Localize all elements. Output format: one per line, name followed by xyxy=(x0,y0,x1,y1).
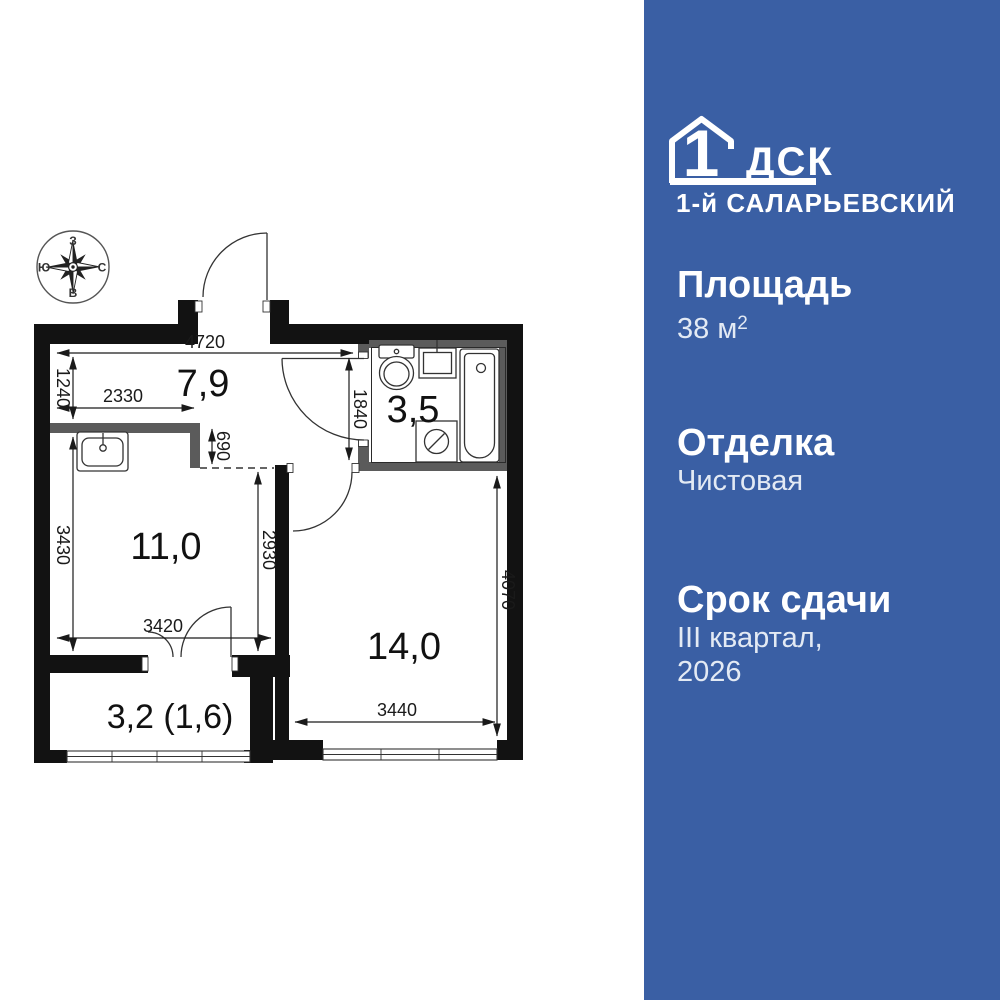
kitchen-sink xyxy=(77,432,128,471)
compass-north-label: С xyxy=(98,261,107,275)
room-label-kitchen: 11,0 xyxy=(130,526,201,568)
compass-rose: З С В Ю xyxy=(37,231,109,303)
floorplan-card: З С В Ю xyxy=(0,0,1000,1000)
deadline-quarter: III квартал, xyxy=(677,621,823,655)
area-number: 38 м xyxy=(677,313,737,345)
brand-logo: 1 ДСК xyxy=(668,112,978,190)
logo-number: 1 xyxy=(683,116,720,190)
compass-east-label: В xyxy=(69,286,78,300)
deadline-year: 2026 xyxy=(677,655,823,689)
spec-finish-label: Отделка xyxy=(677,424,834,464)
dim-1840-label: 1840 xyxy=(350,389,370,429)
logo-brand-text: ДСК xyxy=(746,140,834,184)
room-label-balcony: 3,2 (1,6) xyxy=(107,698,234,736)
room-door xyxy=(293,472,352,531)
spec-deadline-value: III квартал, 2026 xyxy=(677,621,823,689)
doors xyxy=(148,233,364,657)
bathtub xyxy=(460,349,499,462)
spec-area-value: 38 м2 xyxy=(677,307,748,346)
dim-2930-label: 2930 xyxy=(259,530,279,570)
spec-area-label: Площадь xyxy=(677,266,852,306)
toilet xyxy=(379,345,414,390)
dim-2330-label: 2330 xyxy=(103,386,143,406)
room-window xyxy=(323,749,497,760)
info-sidebar: 1 ДСК 1-й САЛАРЬЕВСКИЙ Площадь 38 м2 Отд… xyxy=(644,0,1000,1000)
dim-3430-label: 3430 xyxy=(53,525,73,565)
room-label-hallway: 7,9 xyxy=(177,363,230,405)
balcony-window xyxy=(67,751,250,762)
dim-690-label: 690 xyxy=(213,431,233,461)
area-superscript: 2 xyxy=(737,313,748,334)
dim-4070-label: 4070 xyxy=(498,570,518,610)
compass-west-label: З xyxy=(69,234,77,248)
floor-plan: З С В Ю xyxy=(0,0,644,1000)
dim-3440-label: 3440 xyxy=(377,700,417,720)
dim-1240-label: 1240 xyxy=(53,368,73,408)
dim-3420-label: 3420 xyxy=(143,616,183,636)
entry-wall-stub-right xyxy=(270,300,289,344)
project-name: 1-й САЛАРЬЕВСКИЙ xyxy=(676,188,956,219)
compass-south-label: Ю xyxy=(38,261,50,275)
room-label-room: 14,0 xyxy=(367,626,441,668)
dim-4720-label: 4720 xyxy=(185,332,225,352)
room-divider-wall xyxy=(275,465,289,740)
spec-deadline-label: Срок сдачи xyxy=(677,581,891,621)
entrance-door xyxy=(203,233,267,300)
spec-finish-value: Чистовая xyxy=(677,464,803,498)
room-label-bathroom: 3,5 xyxy=(387,389,440,431)
